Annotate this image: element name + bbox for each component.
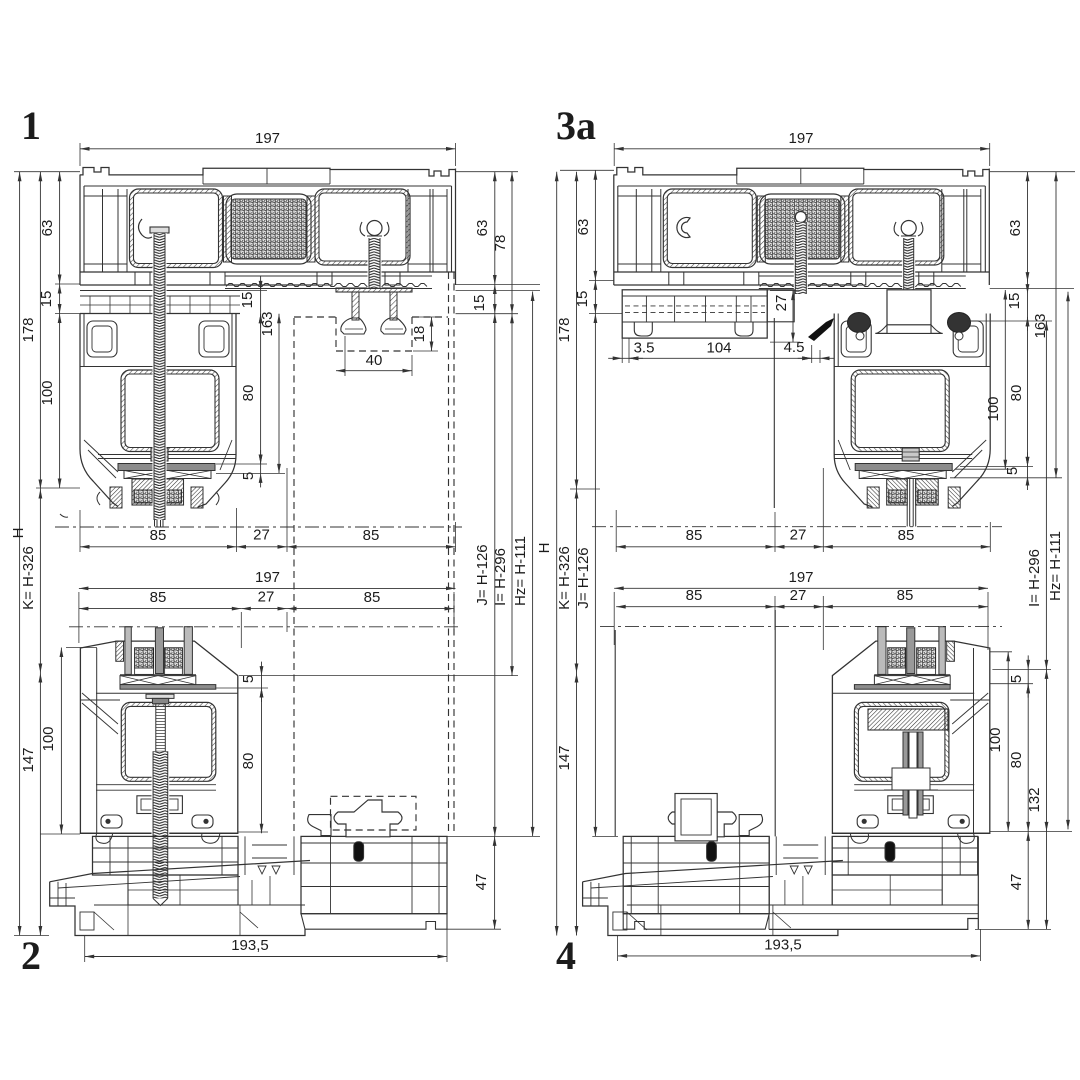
svg-text:100: 100 <box>39 380 56 405</box>
svg-text:163: 163 <box>259 311 276 336</box>
svg-text:Hz= H-111: Hz= H-111 <box>1047 531 1064 601</box>
svg-text:5: 5 <box>240 675 257 683</box>
svg-text:15: 15 <box>574 291 591 308</box>
svg-text:K= H-326: K= H-326 <box>556 546 573 610</box>
svg-text:63: 63 <box>474 220 491 237</box>
svg-text:63: 63 <box>575 219 592 236</box>
svg-text:15: 15 <box>1006 293 1023 310</box>
svg-text:80: 80 <box>240 385 257 402</box>
svg-text:27: 27 <box>773 295 790 312</box>
svg-text:5: 5 <box>1004 467 1021 475</box>
svg-text:I= H-296: I= H-296 <box>492 548 509 606</box>
svg-text:27: 27 <box>258 589 275 606</box>
svg-text:Hz= H-111: Hz= H-111 <box>512 536 529 606</box>
svg-text:85: 85 <box>150 589 167 606</box>
svg-text:80: 80 <box>1008 752 1025 769</box>
svg-text:27: 27 <box>790 527 807 544</box>
svg-text:147: 147 <box>20 747 37 772</box>
svg-text:178: 178 <box>556 317 573 342</box>
svg-text:15: 15 <box>471 295 488 312</box>
svg-text:197: 197 <box>255 130 280 147</box>
svg-text:47: 47 <box>473 874 490 891</box>
svg-text:85: 85 <box>898 527 915 544</box>
svg-text:K= H-326: K= H-326 <box>20 546 37 610</box>
svg-text:163: 163 <box>1032 313 1049 338</box>
svg-text:63: 63 <box>1007 220 1024 237</box>
svg-text:H: H <box>536 543 553 554</box>
svg-text:I= H-296: I= H-296 <box>1026 549 1043 607</box>
svg-text:H: H <box>10 528 27 539</box>
svg-text:63: 63 <box>39 220 56 237</box>
svg-text:132: 132 <box>1026 787 1043 812</box>
svg-text:J= H-126: J= H-126 <box>575 547 592 608</box>
svg-text:147: 147 <box>556 745 573 770</box>
svg-text:100: 100 <box>40 726 57 751</box>
svg-text:40: 40 <box>366 352 383 369</box>
svg-text:197: 197 <box>788 569 813 586</box>
svg-text:18: 18 <box>411 326 428 343</box>
svg-text:104: 104 <box>706 340 731 357</box>
svg-text:85: 85 <box>686 527 703 544</box>
svg-text:85: 85 <box>686 587 703 604</box>
svg-text:4.5: 4.5 <box>784 339 805 356</box>
svg-text:4: 4 <box>556 933 576 978</box>
svg-text:100: 100 <box>987 727 1004 752</box>
svg-text:2: 2 <box>21 933 41 978</box>
svg-text:85: 85 <box>363 527 380 544</box>
svg-text:J= H-126: J= H-126 <box>474 544 491 605</box>
svg-text:47: 47 <box>1008 874 1025 891</box>
svg-text:85: 85 <box>897 587 914 604</box>
svg-text:27: 27 <box>253 527 270 544</box>
svg-text:100: 100 <box>985 396 1002 421</box>
svg-text:178: 178 <box>20 317 37 342</box>
svg-text:85: 85 <box>364 589 381 606</box>
svg-text:85: 85 <box>150 527 167 544</box>
svg-text:5: 5 <box>1008 675 1025 683</box>
svg-text:80: 80 <box>240 753 257 770</box>
svg-text:193,5: 193,5 <box>764 937 802 954</box>
svg-text:1: 1 <box>21 103 41 148</box>
svg-text:197: 197 <box>255 569 280 586</box>
svg-text:78: 78 <box>492 235 509 252</box>
svg-text:15: 15 <box>239 292 256 309</box>
svg-text:15: 15 <box>38 291 55 308</box>
svg-text:197: 197 <box>788 130 813 147</box>
svg-text:80: 80 <box>1008 385 1025 402</box>
svg-text:27: 27 <box>790 587 807 604</box>
svg-text:193,5: 193,5 <box>231 937 269 954</box>
svg-text:3.5: 3.5 <box>634 340 655 357</box>
svg-text:3a: 3a <box>556 103 596 148</box>
